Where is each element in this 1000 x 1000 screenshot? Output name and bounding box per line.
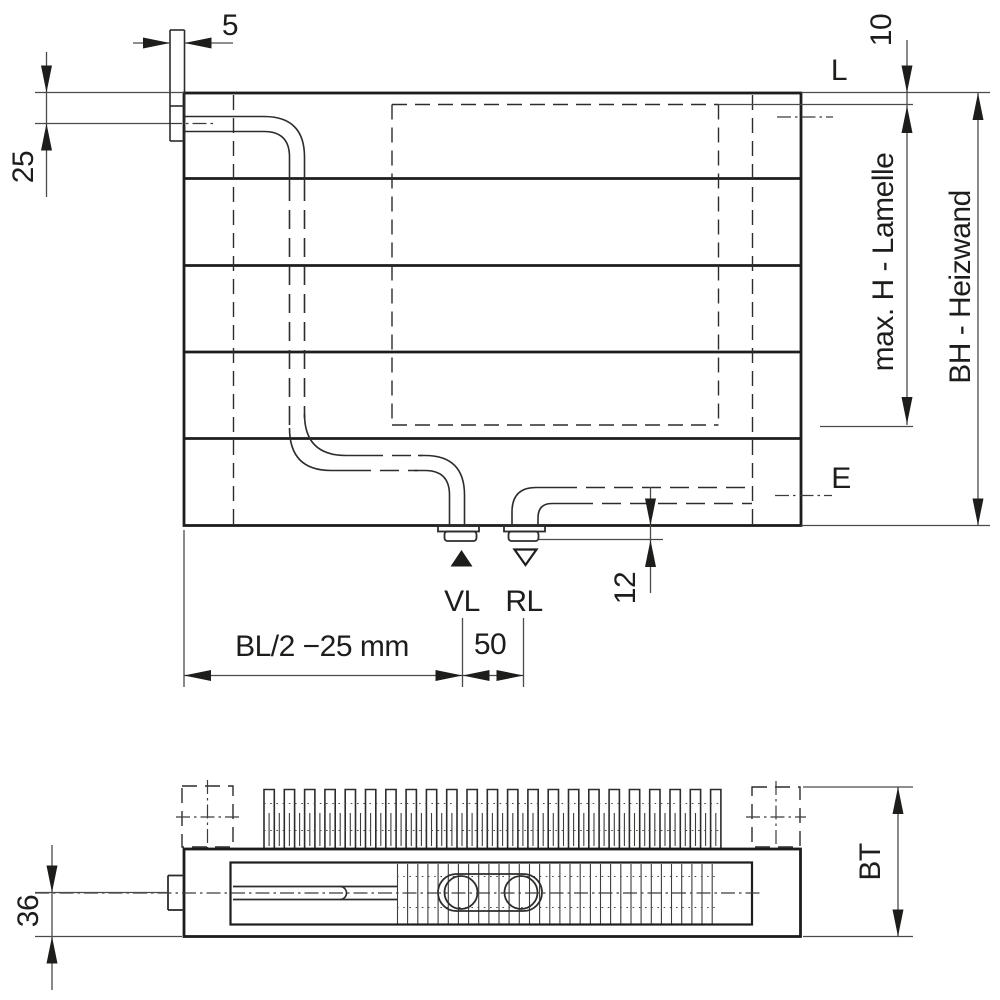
dimension-max-h-lamelle: max. H - Lamelle [820,40,913,427]
dimension-arrow-icon [902,397,913,424]
return-flow-marker-icon [515,550,537,566]
dimension-arrow-icon [973,499,984,526]
wall-bracket-tab [170,30,185,141]
dimension-arrow-icon [463,670,490,681]
plan-hidden-bracket-right [746,781,806,851]
dim-label-36: 36 [12,895,45,927]
dimension-arrow-icon [143,38,170,49]
dimension-arrow-icon [902,66,913,93]
label-RL: RL [505,585,542,618]
label-E: E [831,462,851,495]
dimension-arrow-icon [973,93,984,120]
dimension-arrow-icon [41,66,52,93]
supply-stub [445,532,477,542]
heizwand-technical-drawing: 5 25 L 10 max. H - Lamelle BH - Heizwand… [0,0,1000,1000]
dimension-36: 36 [12,845,182,990]
connection-labels: VL RL [444,585,543,618]
dim-label-50: 50 [474,628,506,661]
front-view-body [184,93,801,526]
label-VL: VL [444,585,480,618]
front-view-hidden-edges [234,95,753,524]
connection-stubs [438,526,545,541]
dimension-arrow-icon [645,499,656,526]
dimension-arrow-icon [902,106,913,133]
dimension-arrow-icon [436,670,463,681]
dimension-arrow-icon [47,866,58,893]
dim-label-12: 12 [609,572,642,604]
label-e-level: E [775,462,851,496]
dim-label-bl2: BL/2 −25 mm [235,630,409,663]
dimension-10-and-L: L 10 [719,14,991,117]
dimension-arrow-icon [893,910,904,937]
dim-label-10: 10 [865,14,898,46]
return-stub [509,532,539,542]
plan-hidden-bracket-left [176,780,239,851]
dimension-bracket-5: 5 [133,9,238,43]
dim-label-bt: BT [854,843,887,881]
dimension-arrow-icon [47,937,58,964]
plan-view [35,780,806,937]
dim-label-25: 25 [7,151,40,183]
dimension-arrow-icon [893,787,904,814]
dimension-arrow-icon [645,540,656,567]
front-view [170,30,801,567]
dim-label-max-h-lamelle: max. H - Lamelle [867,153,900,372]
dimension-arrow-icon [41,124,52,151]
label-L: L [831,54,847,87]
dimension-12: 12 [537,487,663,604]
technical-drawing-page: 5 25 L 10 max. H - Lamelle BH - Heizwand… [0,0,1000,1000]
dimension-arrow-icon [185,38,212,49]
plan-fins-hidden [269,813,716,846]
supply-flow-marker-icon [451,550,473,567]
dimension-arrow-icon [497,670,524,681]
dimension-arrow-icon [184,670,211,681]
dim-label-5: 5 [222,9,238,42]
return-pipe [512,488,752,527]
dim-label-bh-heizwand: BH - Heizwand [944,190,977,384]
